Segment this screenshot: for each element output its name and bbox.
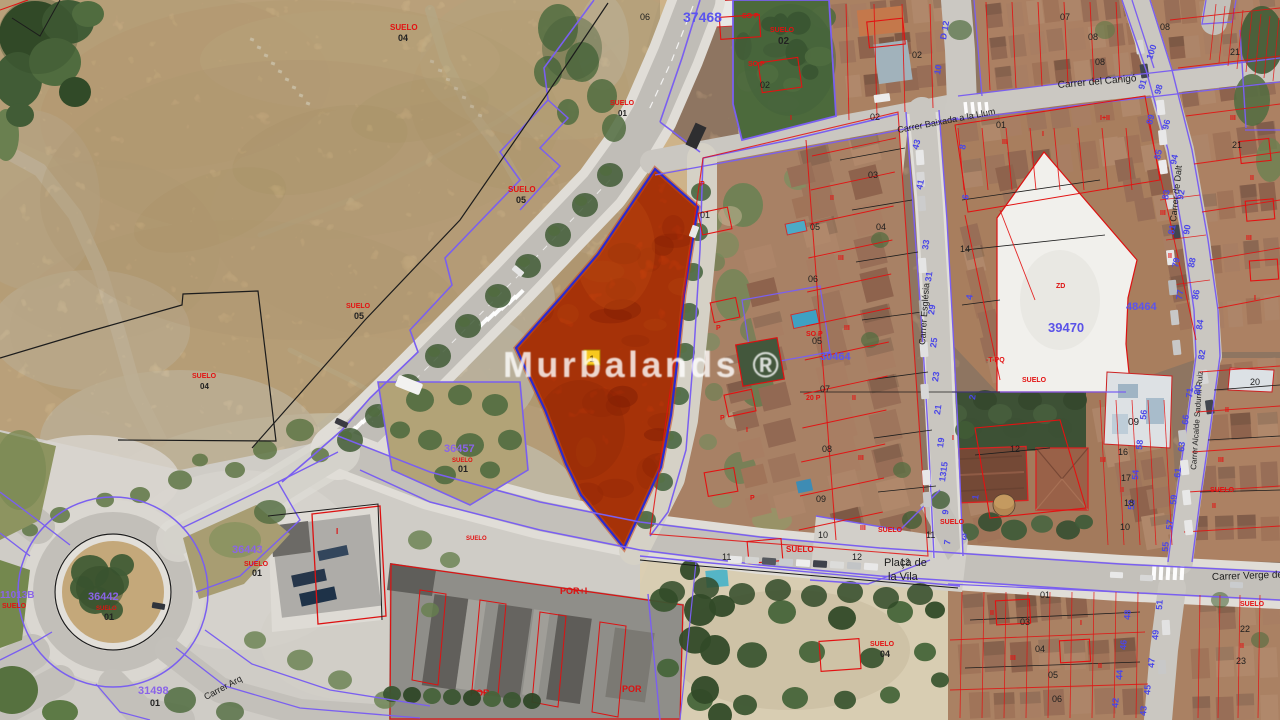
svg-text:14: 14 [960, 244, 970, 254]
svg-text:92: 92 [1175, 189, 1187, 201]
svg-text:II: II [1250, 175, 1254, 182]
svg-text:04: 04 [398, 33, 408, 43]
svg-text:SUELO: SUELO [1240, 601, 1265, 608]
svg-text:71: 71 [1184, 387, 1195, 398]
svg-text:36443: 36443 [232, 544, 263, 556]
svg-text:III: III [1100, 457, 1106, 464]
svg-text:41: 41 [914, 179, 926, 191]
svg-text:02: 02 [760, 80, 770, 90]
svg-text:III: III [838, 255, 844, 262]
svg-text:18: 18 [1124, 498, 1134, 508]
svg-text:06: 06 [808, 274, 818, 284]
svg-text:P: P [716, 325, 721, 332]
svg-text:III: III [1218, 457, 1224, 464]
svg-text:21: 21 [1232, 140, 1242, 150]
svg-text:I: I [336, 527, 338, 536]
svg-text:42: 42 [1110, 697, 1121, 708]
svg-text:Carrer Verge de M: Carrer Verge de M [1212, 569, 1280, 583]
svg-text:SUELO: SUELO [786, 545, 814, 554]
svg-text:51: 51 [1154, 599, 1165, 610]
svg-text:II: II [1212, 503, 1216, 510]
svg-text:III: III [844, 325, 850, 332]
svg-text:20: 20 [1250, 377, 1260, 387]
svg-text:SO P: SO P [748, 61, 765, 68]
svg-text:SUELO: SUELO [2, 603, 27, 610]
svg-text:III: III [1246, 235, 1252, 242]
svg-text:01: 01 [458, 464, 468, 474]
svg-text:48: 48 [1122, 609, 1133, 620]
svg-text:59: 59 [1168, 494, 1179, 505]
svg-text:SUELO: SUELO [508, 185, 536, 194]
svg-text:SUELO: SUELO [770, 27, 795, 34]
svg-text:30464: 30464 [820, 351, 851, 363]
svg-text:SO P: SO P [742, 13, 759, 20]
svg-text:01: 01 [252, 568, 262, 578]
svg-text:29: 29 [926, 304, 937, 315]
svg-text:II: II [830, 195, 834, 202]
svg-text:36442: 36442 [88, 591, 119, 603]
svg-text:08: 08 [822, 444, 832, 454]
svg-text:02: 02 [870, 112, 880, 122]
svg-text:57: 57 [1164, 519, 1175, 530]
svg-text:01: 01 [150, 698, 160, 708]
svg-text:I: I [952, 435, 954, 442]
svg-text:I: I [1042, 131, 1044, 138]
svg-text:09: 09 [816, 494, 826, 504]
svg-text:POR: POR [622, 684, 642, 694]
svg-text:85: 85 [1152, 149, 1164, 161]
svg-text:P: P [750, 495, 755, 502]
svg-text:25: 25 [928, 337, 939, 348]
svg-text:03: 03 [1020, 617, 1030, 627]
svg-text:08: 08 [1095, 57, 1105, 67]
svg-text:II: II [1098, 663, 1102, 670]
svg-text:ZD: ZD [1056, 283, 1065, 290]
svg-text:94: 94 [1168, 154, 1180, 166]
svg-text:21: 21 [1230, 47, 1240, 57]
svg-text:07: 07 [1060, 12, 1070, 22]
svg-text:03: 03 [868, 170, 878, 180]
svg-text:04: 04 [1035, 644, 1045, 654]
svg-text:01: 01 [996, 120, 1006, 130]
svg-text:III: III [1002, 139, 1008, 146]
svg-text:I: I [746, 427, 748, 434]
svg-text:Murbalands ®: Murbalands ® [503, 344, 782, 385]
svg-text:III: III [1230, 115, 1236, 122]
svg-text:43: 43 [1138, 705, 1149, 716]
svg-text:54: 54 [1130, 469, 1141, 480]
svg-text:SUELO: SUELO [192, 373, 217, 380]
svg-text:66: 66 [1180, 414, 1191, 425]
svg-text:10: 10 [932, 64, 944, 76]
svg-text:81: 81 [1166, 224, 1178, 236]
svg-text:04: 04 [876, 222, 886, 232]
svg-text:06: 06 [1052, 694, 1062, 704]
svg-text:3: 3 [962, 532, 967, 542]
svg-text:POR+I: POR+I [560, 586, 587, 596]
svg-text:77: 77 [1174, 289, 1185, 300]
svg-text:12: 12 [1010, 444, 1020, 454]
svg-text:47: 47 [1146, 657, 1157, 668]
svg-text:58: 58 [1134, 439, 1145, 450]
svg-text:II: II [990, 610, 994, 617]
svg-text:SUELO: SUELO [244, 561, 269, 568]
svg-text:23: 23 [1236, 656, 1246, 666]
svg-text:84: 84 [1194, 319, 1205, 330]
svg-text:19: 19 [935, 437, 946, 448]
svg-text:SUELO: SUELO [466, 536, 487, 542]
svg-text:01: 01 [1040, 590, 1050, 600]
svg-text:05: 05 [1048, 670, 1058, 680]
svg-text:82: 82 [1196, 349, 1207, 360]
svg-text:22: 22 [1240, 624, 1250, 634]
svg-text:37468: 37468 [683, 9, 722, 25]
svg-text:04: 04 [200, 382, 209, 391]
svg-text:36457: 36457 [444, 443, 475, 455]
svg-text:12: 12 [900, 557, 910, 567]
svg-text:02: 02 [778, 36, 790, 47]
svg-text:III: III [860, 525, 866, 532]
svg-text:46: 46 [1118, 639, 1129, 650]
svg-text:06: 06 [640, 12, 650, 22]
svg-text:SUELO: SUELO [610, 100, 635, 107]
svg-text:23: 23 [930, 371, 941, 382]
svg-text:I+II: I+II [1100, 115, 1110, 122]
svg-text:31498: 31498 [138, 685, 169, 697]
svg-text:II: II [1120, 487, 1124, 494]
svg-text:I: I [790, 115, 792, 122]
svg-text:SUELO: SUELO [390, 23, 418, 32]
svg-text:04: 04 [880, 649, 890, 659]
svg-text:I: I [1254, 295, 1256, 302]
svg-text:P: P [700, 181, 705, 188]
svg-text:01: 01 [618, 109, 627, 118]
svg-text:11: 11 [926, 530, 935, 540]
svg-text:90: 90 [1181, 224, 1193, 236]
svg-text:31: 31 [923, 271, 934, 282]
svg-text:48464: 48464 [1126, 301, 1157, 313]
svg-text:SUELO: SUELO [1022, 377, 1047, 384]
svg-text:P: P [720, 415, 725, 422]
svg-text:III: III [858, 455, 864, 462]
svg-text:01: 01 [700, 210, 710, 220]
svg-text:II: II [1225, 407, 1229, 414]
svg-text:16: 16 [1118, 447, 1128, 457]
svg-text:63: 63 [1176, 441, 1187, 452]
svg-text:44: 44 [1114, 669, 1125, 680]
svg-text:SUELO: SUELO [870, 641, 895, 648]
svg-text:61: 61 [1172, 467, 1183, 478]
svg-text:02: 02 [912, 50, 922, 60]
svg-text:7: 7 [942, 539, 952, 545]
svg-text:II: II [852, 395, 856, 402]
svg-text:86: 86 [1190, 289, 1202, 301]
svg-text:11: 11 [722, 552, 731, 562]
svg-text:10: 10 [1120, 522, 1130, 532]
svg-text:SUELO: SUELO [940, 519, 965, 526]
svg-text:20 P: 20 P [806, 395, 821, 402]
svg-text:56: 56 [1138, 409, 1149, 420]
svg-text:45: 45 [1142, 684, 1153, 695]
svg-text:08: 08 [1160, 22, 1170, 32]
svg-text:12: 12 [852, 552, 862, 562]
svg-text:39470: 39470 [1048, 320, 1084, 335]
svg-text:SUELO: SUELO [1210, 487, 1235, 494]
svg-text:II: II [1240, 643, 1244, 650]
svg-text:21: 21 [932, 404, 943, 415]
svg-text:SUELO: SUELO [346, 303, 371, 310]
svg-text:SO P: SO P [806, 331, 823, 338]
svg-text:33: 33 [920, 239, 931, 250]
svg-text:SUELO: SUELO [878, 527, 903, 534]
svg-text:83: 83 [1160, 189, 1172, 201]
svg-text:-T-PQ: -T-PQ [986, 357, 1005, 364]
svg-text:05: 05 [354, 311, 364, 321]
svg-text:17: 17 [1121, 473, 1131, 483]
svg-text:05: 05 [516, 195, 526, 205]
svg-text:11013B: 11013B [0, 590, 34, 601]
svg-text:88: 88 [1186, 257, 1198, 269]
svg-text:I: I [1080, 620, 1082, 627]
svg-text:49: 49 [1150, 629, 1161, 640]
svg-text:05: 05 [810, 222, 820, 232]
svg-text:55: 55 [1160, 541, 1171, 552]
svg-text:01: 01 [104, 612, 114, 622]
svg-text:08: 08 [1088, 32, 1098, 42]
svg-text:III: III [1010, 655, 1016, 662]
svg-text:07: 07 [820, 384, 830, 394]
svg-text:10: 10 [818, 530, 828, 540]
svg-text:III: III [1160, 210, 1166, 217]
svg-text:II: II [1168, 253, 1172, 260]
svg-text:la Vila: la Vila [888, 571, 919, 583]
